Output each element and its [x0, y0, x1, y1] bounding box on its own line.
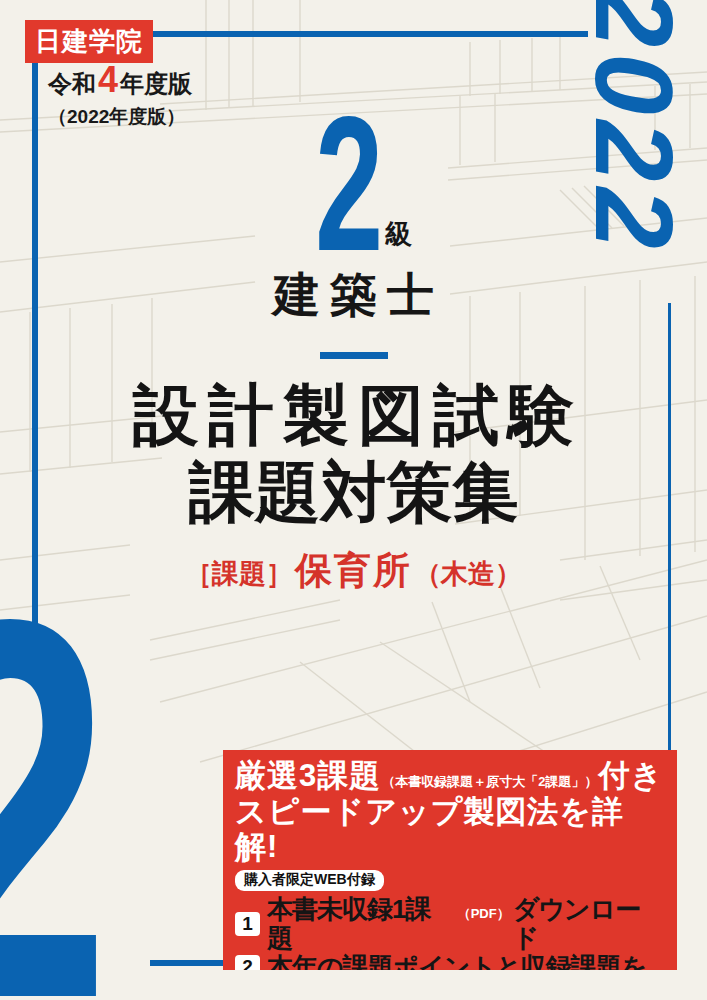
promo-headline-line1: 厳選3課題 （本書収録課題＋原寸大「2課題」） 付き — [235, 759, 665, 794]
item-1-number-badge: 1 — [235, 912, 260, 936]
edition-era-suffix: 年度版 — [120, 68, 192, 100]
grade-block: 2 級 — [301, 114, 412, 254]
bottom-horizontal-rule — [150, 960, 223, 966]
promo-item-2: 2 本年の課題ポイントと収録課題を — [235, 953, 665, 970]
web-bonus-badge: 購入者限定WEB付録 — [235, 870, 384, 891]
book-cover: 2 日建学院 令和4年度版 （2022年度版） 2022 2 級 建築士 設計製… — [0, 0, 707, 1000]
main-title-line2: 課題対策集 — [0, 457, 707, 528]
subject-bracket-label: ［課題］ — [185, 556, 293, 592]
item-2-number-badge: 2 — [235, 955, 260, 970]
grade-digit: 2 — [315, 114, 365, 254]
subject-name: 保育所 — [295, 546, 412, 596]
subject-line: ［課題］ 保育所 （木造） — [0, 546, 707, 596]
edition-era-digit: 4 — [98, 66, 118, 95]
title-divider-rule — [320, 352, 388, 359]
promo-headline-lead: 厳選3課題 — [235, 759, 381, 794]
grade-suffix: 級 — [385, 216, 412, 252]
promo-headline-line2: スピードアップ製図法を詳解! — [235, 794, 665, 865]
promo-item-1: 1 本書未収録1課題 （PDF） ダウンロード — [235, 895, 665, 952]
item-1-action: ダウンロード — [513, 895, 665, 952]
promo-headline-tail: 付き — [598, 759, 663, 794]
item-1-format-note: （PDF） — [458, 905, 510, 923]
publisher-logo: 日建学院 — [25, 20, 153, 63]
edition-era-prefix: 令和 — [48, 68, 96, 100]
promo-box: 厳選3課題 （本書収録課題＋原寸大「2課題」） 付き スピードアップ製図法を詳解… — [223, 750, 677, 970]
top-horizontal-rule — [140, 31, 588, 37]
subject-structure-note: （木造） — [414, 556, 522, 592]
giant-grade-numeral: 2 — [0, 612, 110, 1000]
item-2-text-line1: 本年の課題ポイントと収録課題を — [267, 953, 646, 970]
promo-headline-paren: （本書収録課題＋原寸大「2課題」） — [382, 773, 597, 791]
item-1-text: 本書未収録1課題 — [267, 895, 455, 952]
main-title-line1: 設計製図試験 — [9, 380, 707, 451]
edition-era-line: 令和4年度版 — [48, 66, 192, 100]
title-stack: 2 級 建築士 設計製図試験 課題対策集 ［課題］ 保育所 （木造） — [0, 114, 707, 596]
